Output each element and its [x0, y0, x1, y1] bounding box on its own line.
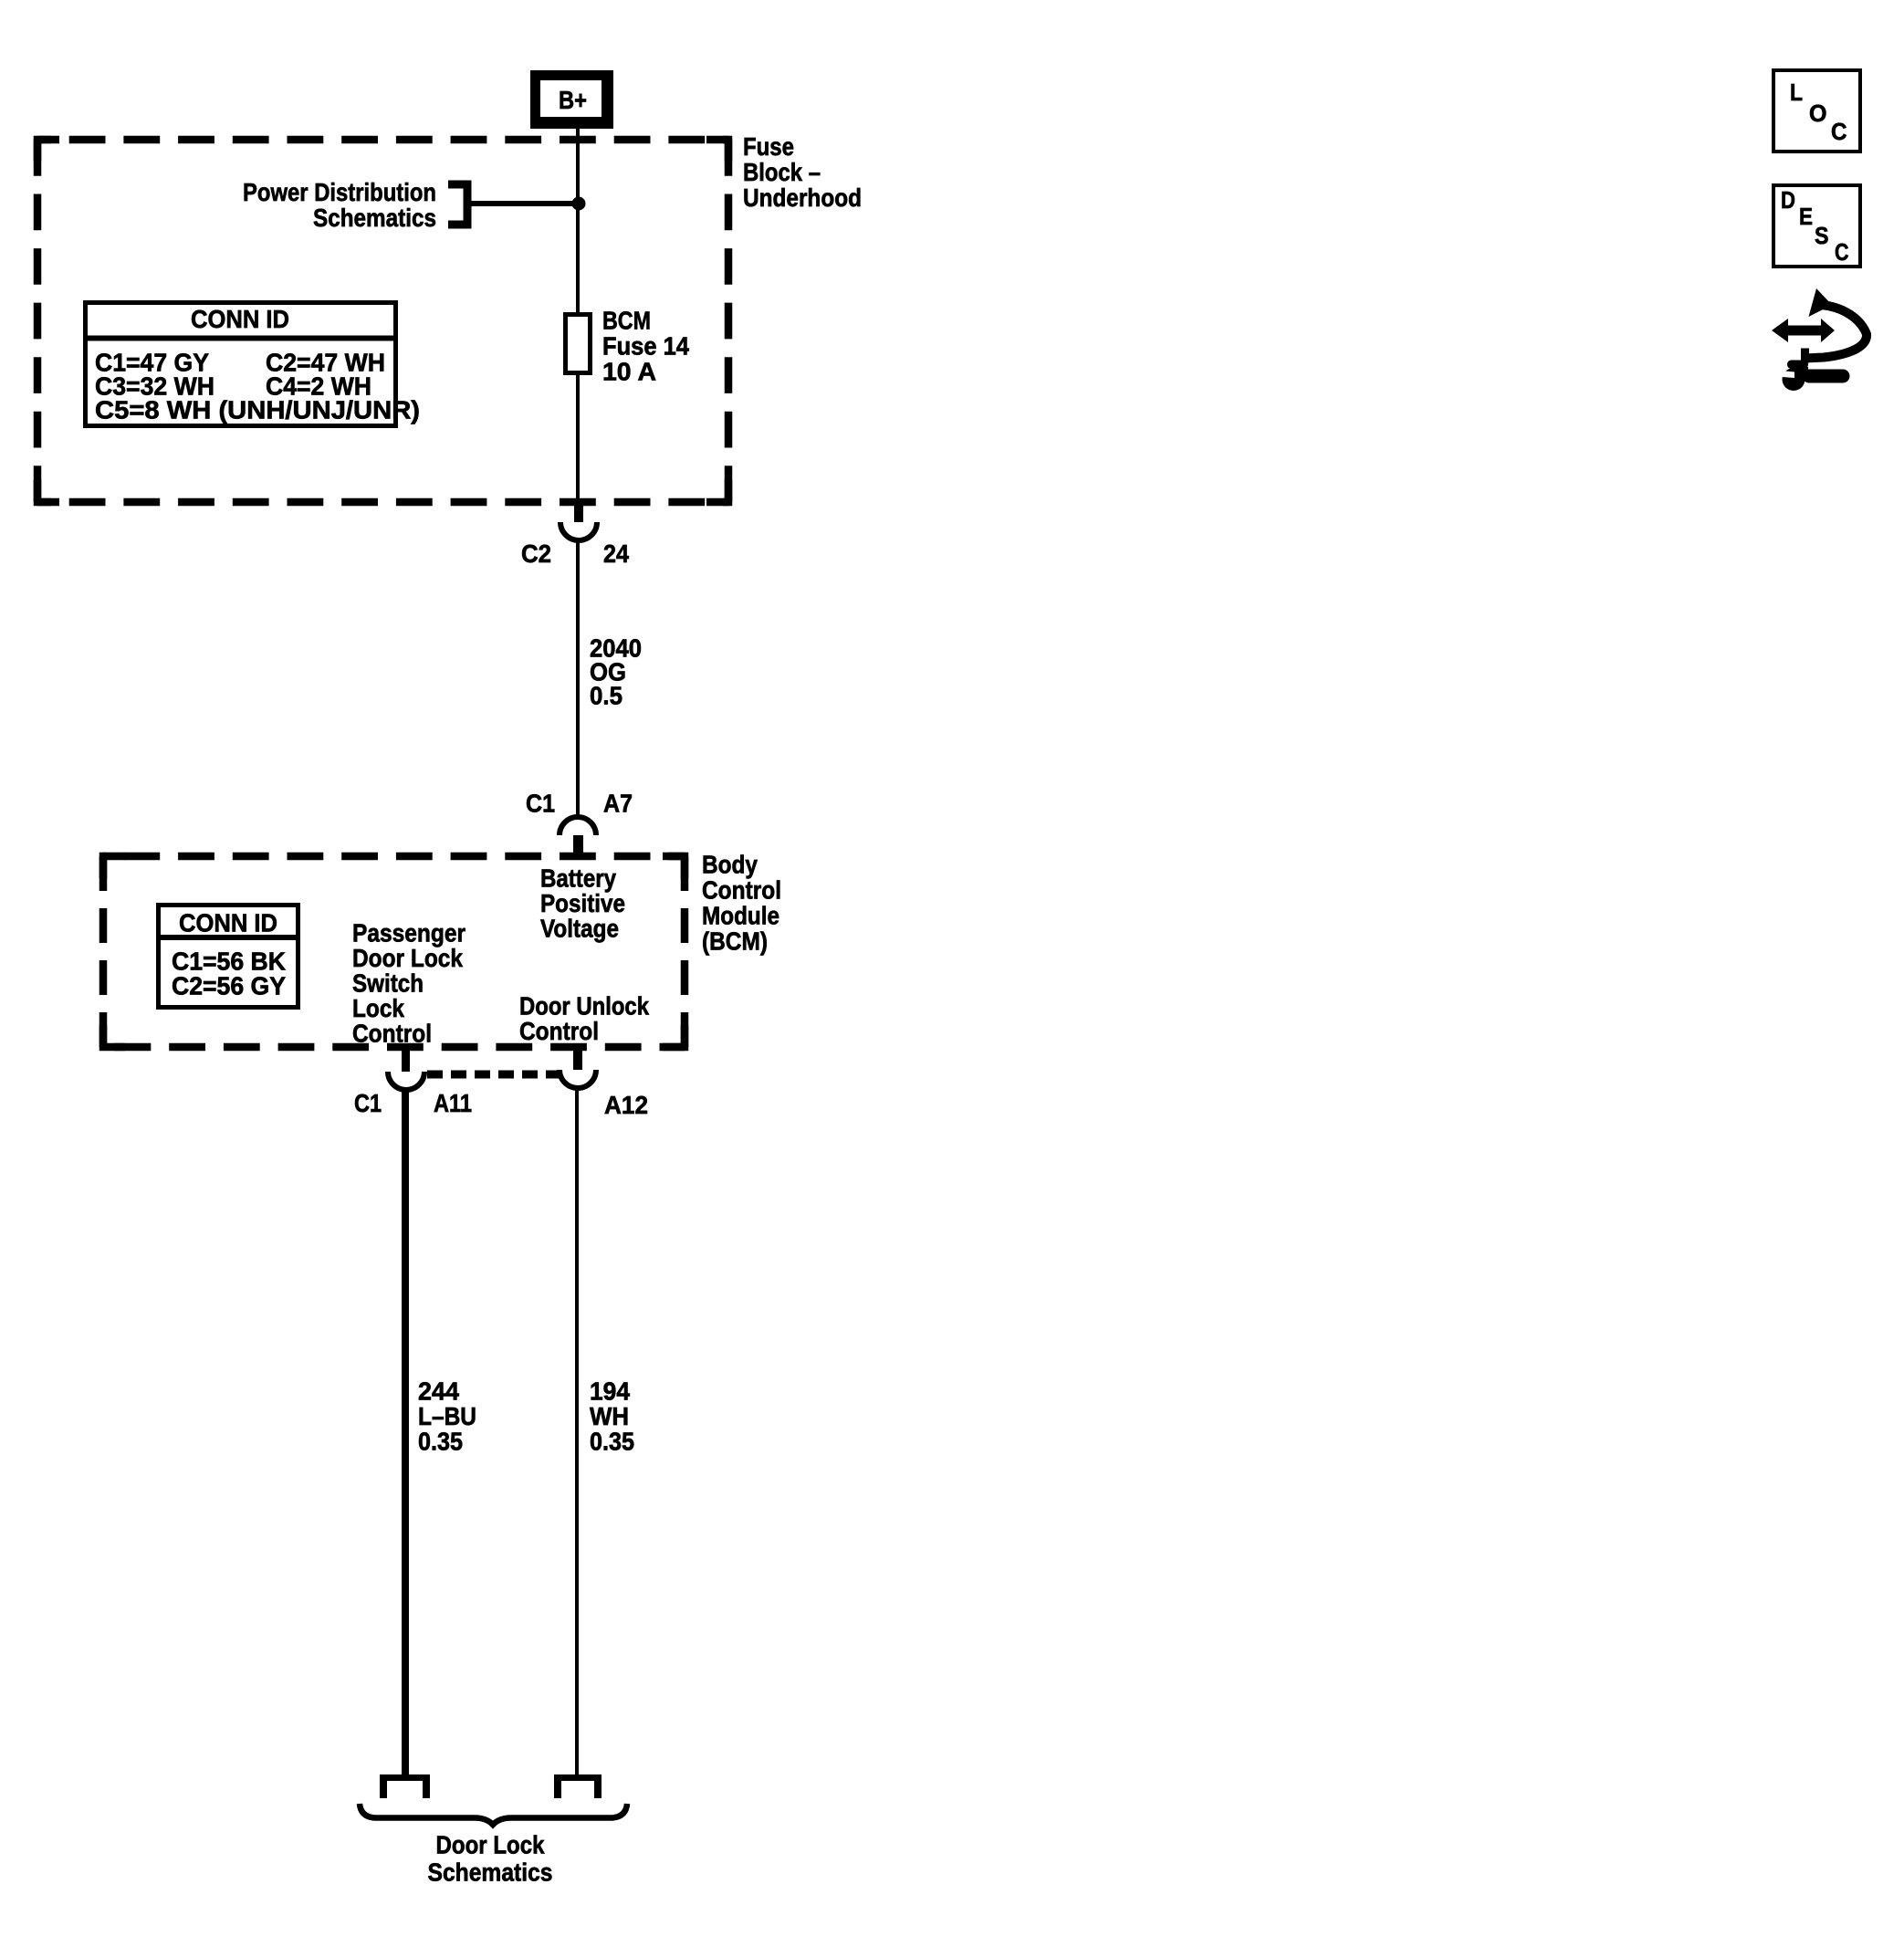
svg-text:C5=8 WH (UNH/UNJ/UNR): C5=8 WH (UNH/UNJ/UNR)	[95, 396, 420, 424]
svg-text:A11: A11	[434, 1089, 472, 1117]
svg-text:194: 194	[590, 1377, 630, 1406]
svg-text:10 A: 10 A	[602, 358, 656, 386]
svg-text:Fuse 14: Fuse 14	[602, 332, 689, 361]
svg-text:Door Lock: Door Lock	[352, 944, 463, 972]
svg-text:Door Unlock: Door Unlock	[519, 992, 649, 1021]
svg-text:D: D	[1781, 186, 1795, 214]
svg-text:L: L	[1790, 79, 1803, 106]
svg-text:Schematics: Schematics	[313, 204, 436, 232]
svg-text:Switch: Switch	[352, 969, 424, 998]
svg-text:Block –: Block –	[743, 158, 821, 186]
svg-text:244: 244	[418, 1377, 459, 1406]
svg-text:Battery: Battery	[540, 864, 616, 893]
svg-text:A12: A12	[604, 1091, 648, 1119]
svg-text:Passenger: Passenger	[352, 919, 466, 947]
svg-text:Body: Body	[702, 851, 758, 879]
svg-text:C2: C2	[521, 539, 551, 568]
svg-text:BCM: BCM	[602, 307, 651, 335]
svg-text:CONN ID: CONN ID	[191, 305, 289, 333]
svg-text:Control: Control	[519, 1017, 599, 1045]
svg-text:0.35: 0.35	[590, 1428, 634, 1456]
svg-text:O: O	[1809, 99, 1827, 127]
svg-text:Schematics: Schematics	[428, 1858, 553, 1887]
svg-text:L–BU: L–BU	[418, 1402, 476, 1430]
svg-text:C1: C1	[526, 790, 555, 818]
svg-text:A7: A7	[603, 790, 633, 818]
svg-text:0.5: 0.5	[590, 682, 622, 710]
svg-text:0.35: 0.35	[418, 1428, 463, 1456]
svg-text:S: S	[1815, 222, 1829, 249]
svg-text:Fuse: Fuse	[743, 132, 794, 161]
svg-text:C: C	[1831, 118, 1847, 145]
svg-text:Underhood: Underhood	[743, 183, 862, 212]
svg-text:C: C	[1835, 238, 1849, 266]
svg-text:C2=56 GY: C2=56 GY	[172, 972, 286, 1000]
svg-text:Positive: Positive	[540, 889, 625, 917]
svg-text:Module: Module	[702, 902, 779, 930]
svg-text:CONN ID: CONN ID	[179, 909, 277, 937]
svg-text:(BCM): (BCM)	[702, 927, 768, 956]
svg-text:Voltage: Voltage	[540, 915, 619, 943]
svg-text:Door Lock: Door Lock	[436, 1831, 545, 1859]
svg-text:Control: Control	[352, 1020, 432, 1048]
svg-text:WH: WH	[590, 1402, 629, 1430]
svg-text:Control: Control	[702, 876, 781, 905]
svg-text:Power Distribution: Power Distribution	[243, 178, 436, 206]
svg-text:Lock: Lock	[352, 994, 404, 1022]
svg-text:C1: C1	[354, 1089, 382, 1117]
svg-text:B+: B+	[559, 86, 587, 114]
svg-text:24: 24	[603, 539, 629, 568]
svg-text:E: E	[1799, 203, 1813, 230]
